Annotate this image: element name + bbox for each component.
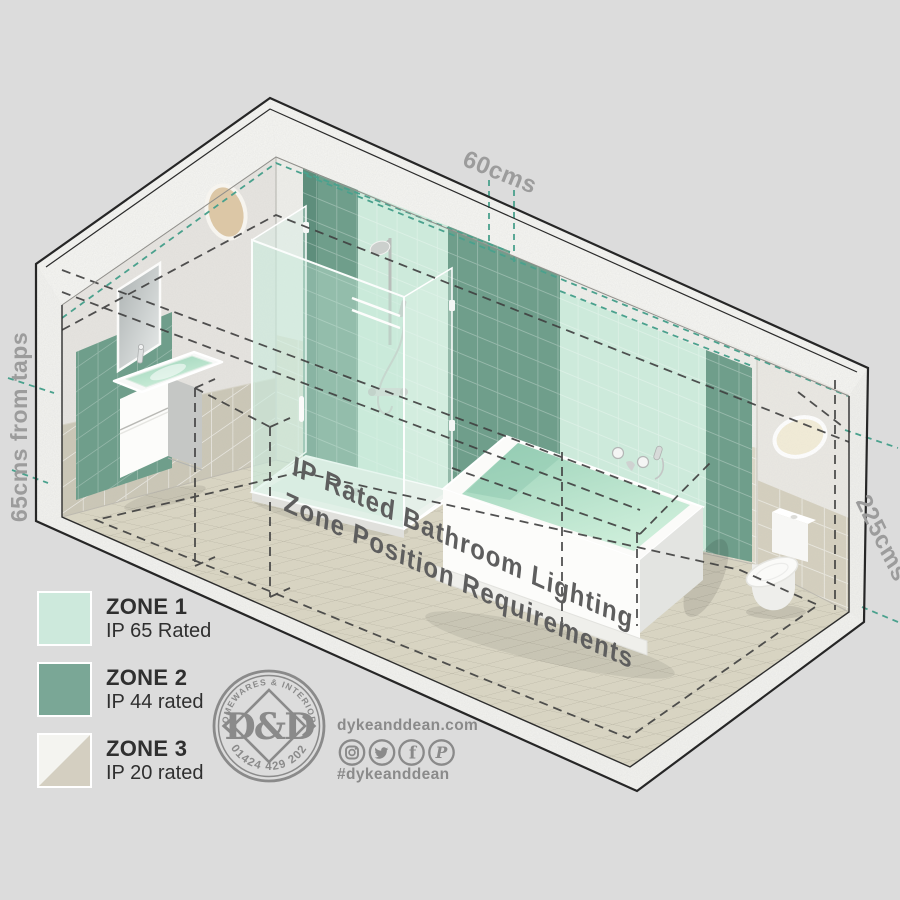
badge-monogram: D&D: [225, 706, 315, 748]
zone3-rating: IP 20 rated: [106, 762, 203, 785]
zone2-label: ZONE 2: [106, 665, 203, 691]
hashtag-text: #dykeanddean: [337, 766, 449, 784]
zone3-label: ZONE 3: [106, 736, 203, 762]
zone1-swatch: [37, 591, 92, 646]
social-icons-row: f P: [337, 739, 457, 767]
svg-text:f: f: [409, 744, 418, 764]
zone2-rating: IP 44 rated: [106, 691, 203, 714]
pinterest-icon: P: [435, 743, 449, 762]
zone1-rating: IP 65 Rated: [106, 620, 211, 643]
dyke-and-dean-logo-badge: HOMEWARES & INTERIORS 01424 429 202 D&D: [212, 669, 326, 783]
legend-item-zone3: ZONE 3 IP 20 rated: [37, 733, 203, 788]
dimension-label-left: 65cms from taps: [6, 332, 32, 522]
website-text: dykeanddean.com: [337, 717, 478, 735]
instagram-icon: [346, 747, 358, 759]
zone3-swatch: [37, 733, 92, 788]
zone1-label: ZONE 1: [106, 594, 211, 620]
facebook-icon: f: [409, 744, 418, 764]
svg-text:P: P: [435, 743, 449, 762]
infographic-page: { "page": { "background": "#dcdcdc" }, "…: [0, 0, 900, 900]
basin-tap: [137, 348, 144, 363]
zone2-swatch: [37, 662, 92, 717]
shower-door-handle: [299, 396, 304, 422]
legend-item-zone1: ZONE 1 IP 65 Rated: [37, 591, 211, 646]
twitter-icon: [374, 747, 388, 758]
legend-item-zone2: ZONE 2 IP 44 rated: [37, 662, 203, 717]
